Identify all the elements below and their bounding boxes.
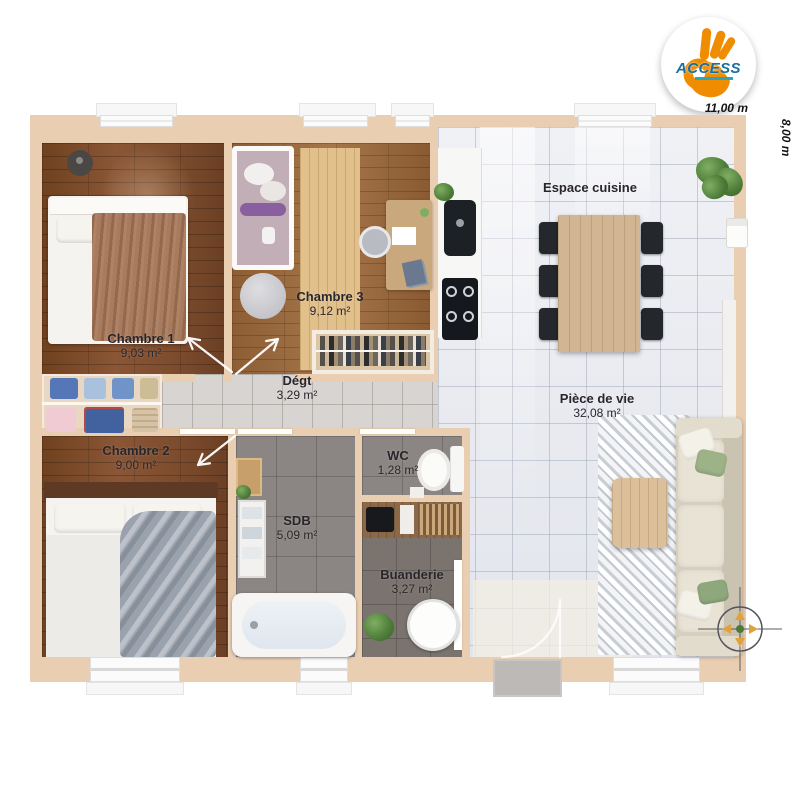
logo-wordmark: ACCESS	[661, 60, 756, 77]
room-label-sdb: SDB 5,09 m²	[277, 513, 318, 543]
room-label-chambre2: Chambre 2 9,00 m²	[102, 443, 169, 473]
room-name: SDB	[277, 513, 318, 528]
room-label-degagement: Dégt 3,29 m²	[277, 373, 318, 403]
window-sill	[86, 682, 184, 695]
room-label-buanderie: Buanderie 3,27 m²	[380, 567, 444, 597]
door-swing-chambre3	[236, 339, 278, 374]
floor-plan-canvas: ACCESS 11,00 m 8,00 m	[0, 0, 800, 800]
room-area: 3,27 m²	[380, 582, 444, 597]
door-swing-chambre1	[188, 338, 232, 372]
room-name: Pièce de vie	[560, 391, 634, 406]
room-area: 1,28 m²	[378, 463, 419, 478]
room-area: 32,08 m²	[560, 406, 634, 421]
room-name: Buanderie	[380, 567, 444, 582]
room-label-chambre3: Chambre 3 9,12 m²	[296, 289, 363, 319]
room-area: 9,00 m²	[102, 458, 169, 473]
width-dimension-label: 11,00 m	[705, 101, 748, 115]
room-name: Dégt	[277, 373, 318, 388]
room-label-chambre1: Chambre 1 9,03 m²	[107, 331, 174, 361]
room-label-wc: WC 1,28 m²	[378, 448, 419, 478]
room-area: 9,12 m²	[296, 304, 363, 319]
room-label-cuisine: Espace cuisine	[543, 180, 637, 195]
room-name: Chambre 1	[107, 331, 174, 346]
room-name: Chambre 2	[102, 443, 169, 458]
entrance-door-swing	[502, 599, 560, 657]
room-name: WC	[378, 448, 419, 463]
room-area: 9,03 m²	[107, 346, 174, 361]
window-sill	[296, 682, 352, 695]
access-logo: ACCESS	[661, 17, 756, 112]
room-area: 3,29 m²	[277, 388, 318, 403]
window-sill	[609, 682, 704, 695]
compass-icon	[698, 587, 782, 671]
room-area: 5,09 m²	[277, 528, 318, 543]
room-label-piece-de-vie: Pièce de vie 32,08 m²	[560, 391, 634, 421]
floor-plan: Chambre 1 9,03 m² Chambre 3 9,12 m² Dégt…	[30, 115, 746, 682]
door-swing-chambre2	[198, 436, 235, 465]
height-dimension-label: 8,00 m	[779, 119, 793, 156]
logo-underline	[695, 77, 733, 80]
room-name: Chambre 3	[296, 289, 363, 304]
room-name: Espace cuisine	[543, 180, 637, 195]
